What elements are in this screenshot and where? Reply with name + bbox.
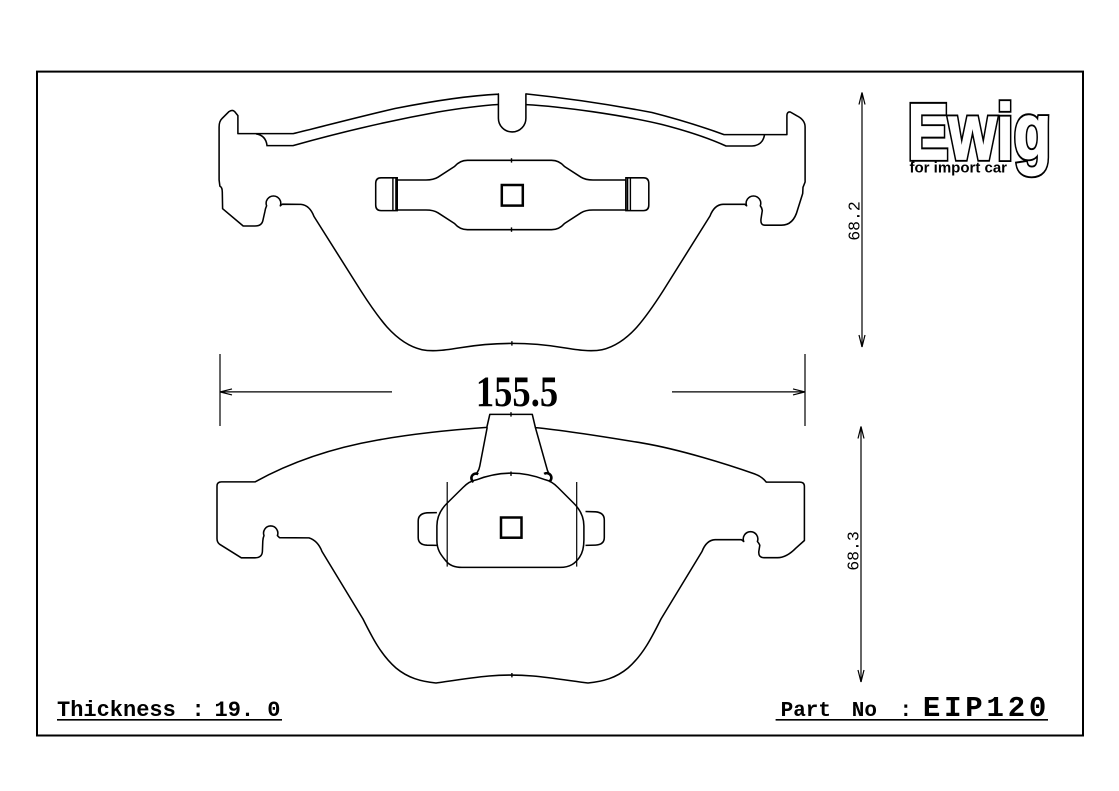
svg-text:68.3: 68.3 <box>845 531 864 571</box>
svg-text:for import car: for import car <box>910 159 1008 176</box>
svg-text:68.2: 68.2 <box>846 201 865 241</box>
svg-text:155.5: 155.5 <box>476 367 558 415</box>
